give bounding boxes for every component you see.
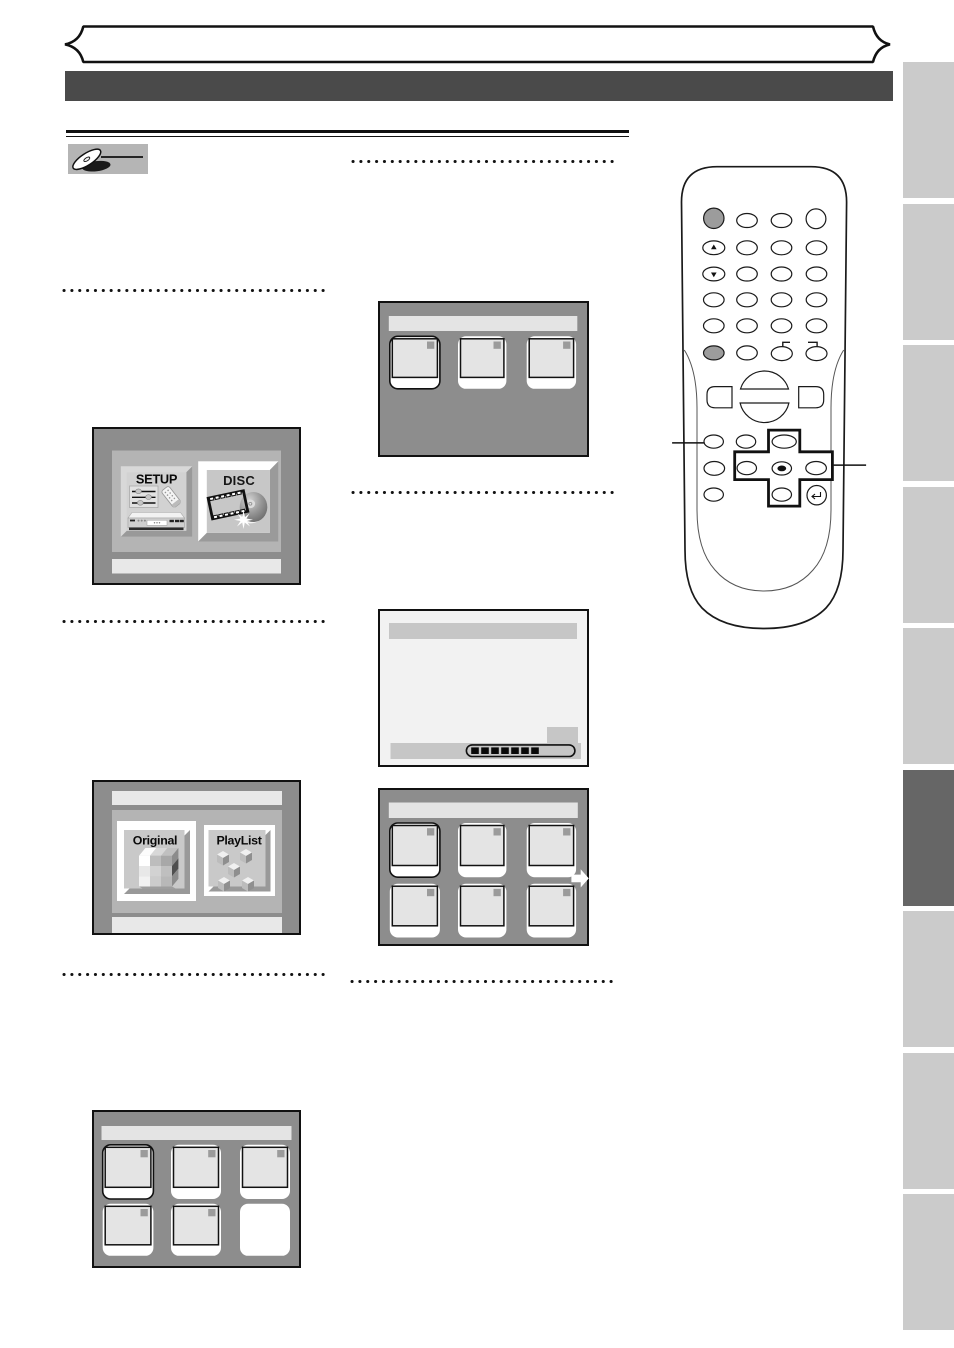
svg-text:Original: Original xyxy=(133,834,177,848)
svg-text:PlayList: PlayList xyxy=(216,834,261,848)
svg-text:DISC: DISC xyxy=(223,473,255,488)
svg-text:SETUP: SETUP xyxy=(136,472,178,487)
